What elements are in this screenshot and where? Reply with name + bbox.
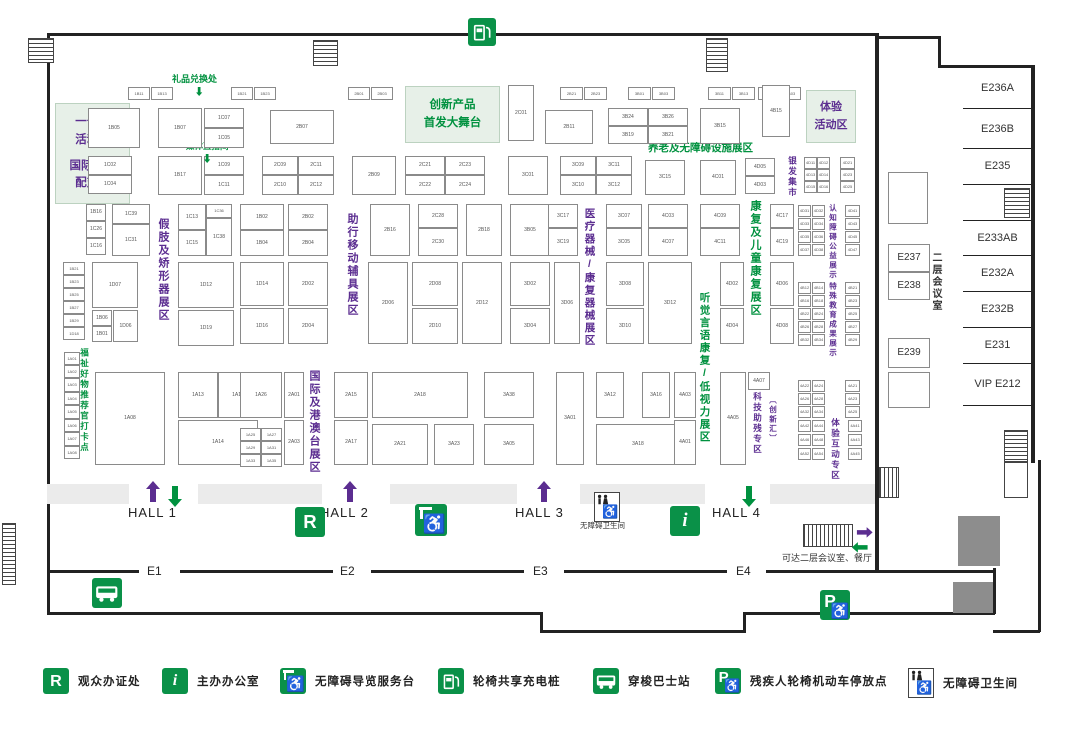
down-arrow-icon <box>196 82 202 100</box>
aisle-bar <box>47 484 129 504</box>
booth-3B15: 3B15 <box>700 108 740 144</box>
booth-4D35: 4D35 <box>798 231 811 243</box>
room-E236A: E236A <box>963 68 1032 108</box>
booth-3C11: 3C11 <box>596 156 632 175</box>
legend-guide-icon: ♿ <box>280 668 306 694</box>
wall-segment <box>540 612 543 632</box>
legend-item-parking: P♿残疾人轮椅机动车停放点 <box>715 668 888 694</box>
booth-4B25: 4B25 <box>845 308 860 320</box>
right-arrow-icon <box>852 527 873 538</box>
room-stairwell <box>963 184 1032 220</box>
booth-1B17: 1B17 <box>158 156 202 195</box>
booth-4D41: 4D41 <box>845 205 860 217</box>
letter-i: i <box>173 672 177 690</box>
booth-4C11: 4C11 <box>700 228 740 256</box>
booth-1C31: 1C31 <box>112 224 150 256</box>
legend-label: 轮椅共享充电桩 <box>473 673 561 689</box>
booth-1C13: 1C13 <box>178 204 206 230</box>
booth-4A03: 4A03 <box>674 372 696 418</box>
legend-label: 主办办公室 <box>197 673 260 689</box>
booth-2B18: 2B18 <box>466 204 502 256</box>
booth-4D06: 4D06 <box>770 262 794 306</box>
booth-2C11: 2C11 <box>298 156 334 175</box>
stairs-icon <box>879 467 899 498</box>
booth-4A46: 4A46 <box>798 434 811 446</box>
booth-4D32: 4D32 <box>812 205 825 217</box>
booth-1D14: 1D14 <box>240 262 284 306</box>
booth-1A13: 1A13 <box>178 372 218 418</box>
down-arrow-icon <box>168 481 182 507</box>
zone-label: 福祉好物推荐官打卡点 <box>80 348 89 453</box>
zone-label: 体验互动专区 <box>831 418 840 481</box>
booth-1A07: 1A07 <box>64 432 80 446</box>
booth-4A41: 4A41 <box>848 420 862 432</box>
booth-4D08: 4D08 <box>770 308 794 344</box>
booth-2A21: 2A21 <box>372 424 428 465</box>
booth-3B11: 3B11 <box>708 87 731 100</box>
legend-label: 穿梭巴士站 <box>628 673 691 689</box>
wall-segment <box>540 630 746 633</box>
booth-4A28: 4A28 <box>812 393 825 405</box>
zone-label: 科技助残专区 <box>753 392 762 455</box>
booth-2B02: 2B02 <box>288 204 328 230</box>
info-office-icon: i <box>670 506 700 536</box>
legend-item-rbadge: R观众办证处 <box>43 668 141 694</box>
booth-1C04: 1C04 <box>88 175 132 194</box>
stairs-icon <box>706 38 728 72</box>
booth-3A16: 3A16 <box>642 372 670 418</box>
wall-segment <box>47 33 878 36</box>
wall-segment <box>47 33 50 614</box>
room-box-E238: E238 <box>888 272 930 300</box>
booth-1B21: 1B21 <box>63 262 85 275</box>
booth-4D36: 4D36 <box>812 231 825 243</box>
booth-2C01: 2C01 <box>508 85 534 141</box>
wall-segment <box>1038 460 1041 632</box>
booth-1A04: 1A04 <box>64 392 80 405</box>
activity-area-line: 活动区 <box>815 117 848 134</box>
booth-3C19: 3C19 <box>548 228 578 256</box>
booth-2A18: 2A18 <box>372 372 468 418</box>
booth-4D25: 4D25 <box>840 181 855 193</box>
booth-4B29: 4B29 <box>845 334 860 346</box>
shuttle-bus-icon <box>92 578 122 608</box>
booth-4B28: 4B28 <box>812 321 825 333</box>
booth-1C16: 1C16 <box>86 238 106 255</box>
legend-item-toilet: ♿无障碍卫生间 <box>908 668 1018 698</box>
hall-label: HALL 2 <box>320 505 369 520</box>
stairs-icon <box>2 523 16 585</box>
stairs-icon <box>28 38 54 63</box>
booth-1C36: 1C36 <box>206 204 232 218</box>
activity-area-line: 首发大舞台 <box>424 115 482 133</box>
legend-label: 观众办证处 <box>78 673 141 689</box>
booth-3B01: 3B01 <box>628 87 651 100</box>
booth-1B06: 1B06 <box>92 310 112 326</box>
booth-3A18: 3A18 <box>596 424 680 465</box>
booth-1A06: 1A06 <box>64 419 80 432</box>
booth-4C19: 4C19 <box>770 228 794 256</box>
booth-4B27: 4B27 <box>845 321 860 333</box>
booth-1C39: 1C39 <box>112 204 150 224</box>
booth-3B24: 3B24 <box>608 108 648 126</box>
letter-i: i <box>682 510 687 532</box>
booth-3A12: 3A12 <box>596 372 624 418</box>
booth-4D15: 4D15 <box>804 181 817 193</box>
wall-segment <box>371 570 524 573</box>
service-block <box>958 516 1000 566</box>
activity-area: 创新产品首发大舞台 <box>405 86 500 143</box>
booth-3C15: 3C15 <box>645 160 685 195</box>
wheelchair-charging-icon <box>468 18 496 46</box>
booth-4A26: 4A26 <box>798 393 811 405</box>
room-E232A: E232A <box>963 255 1032 291</box>
booth-4B14: 4B14 <box>812 282 825 294</box>
booth-4A54: 4A54 <box>812 448 825 460</box>
booth-3D10: 3D10 <box>606 308 644 344</box>
booth-4D23: 4D23 <box>840 169 855 181</box>
booth-2C23: 2C23 <box>445 156 485 175</box>
booth-2C30: 2C30 <box>418 228 458 256</box>
booth-3C10: 3C10 <box>560 175 596 195</box>
aisle-bar <box>390 484 517 504</box>
booth-1C02: 1C02 <box>88 156 132 175</box>
booth-1C15: 1C15 <box>178 230 206 256</box>
booth-3A01: 3A01 <box>556 372 584 465</box>
booth-1A08: 1A08 <box>95 372 165 465</box>
booth-1B23: 1B23 <box>254 87 276 100</box>
booth-4C07: 4C07 <box>648 228 688 256</box>
booth-4B23: 4B23 <box>845 295 860 307</box>
zone-label: 国际及港澳台展区 <box>308 370 319 474</box>
hall-label: HALL 4 <box>712 505 761 520</box>
wall-segment <box>878 36 940 39</box>
booth-4D03: 4D03 <box>745 176 775 194</box>
booth-1A35: 1A35 <box>261 454 282 467</box>
booth-4D31: 4D31 <box>798 205 811 217</box>
booth-3C12: 3C12 <box>596 175 632 195</box>
booth-4A44: 4A44 <box>812 420 825 432</box>
wall-segment <box>993 630 1040 633</box>
booth-1A33: 1A33 <box>240 454 261 467</box>
booth-4A42: 4A42 <box>798 420 811 432</box>
booth-1B16: 1B16 <box>86 204 106 221</box>
room-box-E239: E239 <box>888 338 930 368</box>
booth-4D04: 4D04 <box>720 308 744 344</box>
booth-4B34: 4B34 <box>812 334 825 346</box>
wall-segment <box>47 612 541 615</box>
booth-3B26: 3B26 <box>648 108 688 126</box>
legend-charge-icon <box>438 668 464 694</box>
booth-2A17: 2A17 <box>334 420 368 465</box>
booth-1A02: 1A02 <box>64 365 80 378</box>
booth-4A21: 4A21 <box>845 380 860 392</box>
entrance-label: E1 <box>147 564 162 578</box>
entrance-label: E2 <box>340 564 355 578</box>
letter-r: R <box>303 511 316 533</box>
booth-1B02: 1B02 <box>240 204 284 230</box>
room-box-E237: E237 <box>888 244 930 272</box>
booth-4D02: 4D02 <box>720 262 744 306</box>
booth-4A34: 4A34 <box>812 406 825 418</box>
hall-label: HALL 1 <box>128 505 177 520</box>
booth-4D43: 4D43 <box>845 218 860 230</box>
booth-1B01: 1B01 <box>92 326 112 342</box>
booth-1A31: 1A31 <box>261 441 282 454</box>
booth-4A01: 4A01 <box>674 420 696 465</box>
booth-3C17: 3C17 <box>548 204 578 228</box>
zone-label: 助行移动辅具展区 <box>346 213 357 317</box>
booth-4B21: 4B21 <box>845 282 860 294</box>
booth-1B07: 1B07 <box>158 108 202 148</box>
booth-4D11: 4D11 <box>804 157 817 169</box>
booth-3D04: 3D04 <box>510 308 550 344</box>
up-arrow-icon <box>537 481 551 507</box>
booth-1A01: 1A01 <box>64 352 80 365</box>
booth-4A23: 4A23 <box>845 393 860 405</box>
booth-4B32: 4B32 <box>798 334 811 346</box>
booth-4D37: 4D37 <box>798 244 811 256</box>
booth-4D13: 4D13 <box>804 169 817 181</box>
booth-2B16: 2B16 <box>370 204 410 256</box>
booth-4A05: 4A05 <box>720 372 746 465</box>
down-arrow-icon <box>742 481 756 507</box>
booth-2C24: 2C24 <box>445 175 485 195</box>
accessible-guide-icon: ♿ <box>415 504 447 536</box>
booth-1A26: 1A26 <box>240 372 282 418</box>
booth-1C11: 1C11 <box>204 175 244 195</box>
booth-1C26: 1C26 <box>86 221 106 238</box>
booth-2B23: 2B23 <box>584 87 607 100</box>
legend-label: 残疾人轮椅机动车停放点 <box>750 673 888 689</box>
stairs-icon <box>1004 430 1028 462</box>
booth-2D08: 2D08 <box>412 262 458 306</box>
booth-3B05: 3B05 <box>510 204 550 256</box>
booth-1D19: 1D19 <box>178 310 234 346</box>
booth-2B03: 2B03 <box>371 87 393 100</box>
booth-3D12: 3D12 <box>648 262 692 344</box>
booth-3B19: 3B19 <box>608 126 648 144</box>
legend-item-ibadge: i主办办公室 <box>162 668 260 694</box>
legend-item-charge: 轮椅共享充电桩 <box>438 668 561 694</box>
hall-label: HALL 3 <box>515 505 564 520</box>
booth-1A29: 1A29 <box>240 441 261 454</box>
booth-2C12: 2C12 <box>298 175 334 195</box>
booth-1D16: 1D16 <box>240 308 284 344</box>
booth-4A25: 4A25 <box>845 406 860 418</box>
booth-4B16: 4B16 <box>798 295 811 307</box>
room-VIP E212: VIP E212 <box>963 363 1032 405</box>
booth-1B25: 1B25 <box>63 288 85 301</box>
wall-segment <box>180 570 333 573</box>
booth-1B29: 1B29 <box>63 314 85 327</box>
booth-1B05: 1B05 <box>88 108 140 148</box>
booth-4C09: 4C09 <box>700 204 740 228</box>
exhibition-floor-plan: 一号馆活动区国际商贸配对区创新产品首发大舞台体验活动区假肢及矫形器展区助行移动辅… <box>0 0 1080 734</box>
legend-toilet-icon: ♿ <box>908 668 934 698</box>
booth-4A48: 4A48 <box>812 434 825 446</box>
booth-2A03: 2A03 <box>284 420 304 465</box>
booth-2B01: 2B01 <box>348 87 370 100</box>
accessible-parking-icon: P♿ <box>820 590 850 620</box>
zone-label: 二层会议室 <box>930 252 940 312</box>
booth-1C38: 1C38 <box>206 218 232 256</box>
legend-ibadge-icon: i <box>162 668 188 694</box>
wall-segment <box>963 108 1032 109</box>
booth-4A07: 4A07 <box>748 372 770 390</box>
booth-1D18: 1D18 <box>63 327 85 340</box>
booth-1D07: 1D07 <box>92 262 138 308</box>
booth-1C07: 1C07 <box>204 108 244 128</box>
booth-4C03: 4C03 <box>648 204 688 228</box>
booth-4A32: 4A32 <box>798 406 811 418</box>
booth-4A45: 4A45 <box>848 448 862 460</box>
booth-4A43: 4A43 <box>848 434 862 446</box>
booth-2D10: 2D10 <box>412 308 458 344</box>
booth-2C22: 2C22 <box>405 175 445 195</box>
booth-1A05: 1A05 <box>64 405 80 419</box>
legend-item-guide: ♿无障碍导览服务台 <box>280 668 415 694</box>
activity-area: 体验活动区 <box>806 90 856 143</box>
booth-4A24: 4A24 <box>812 380 825 392</box>
booth-1A27: 1A27 <box>261 428 282 441</box>
booth-1B11: 1B11 <box>128 87 150 100</box>
booth-2D04: 2D04 <box>288 308 328 344</box>
room-box-unlabeled <box>888 372 930 408</box>
booth-3B03: 3B03 <box>652 87 675 100</box>
wall-segment <box>564 570 727 573</box>
entrance-label: E3 <box>533 564 548 578</box>
booth-4D05: 4D05 <box>745 158 775 176</box>
booth-1A25: 1A25 <box>240 428 261 441</box>
booth-2B11: 2B11 <box>545 110 593 144</box>
legend-item-bus: 穿梭巴士站 <box>593 668 691 694</box>
registration-icon: R <box>295 507 325 537</box>
booth-4B26: 4B26 <box>798 321 811 333</box>
down-arrow-icon <box>204 149 210 167</box>
booth-1A03: 1A03 <box>64 378 80 392</box>
legend-parking-icon: P♿ <box>715 668 741 694</box>
room-E233AB: E233AB <box>963 220 1032 255</box>
wall-segment <box>47 570 139 573</box>
zone-label: 假肢及矫形器展区 <box>157 218 168 322</box>
room-E236B: E236B <box>963 110 1032 148</box>
booth-4A52: 4A52 <box>798 448 811 460</box>
booth-4C17: 4C17 <box>770 204 794 228</box>
activity-area-line: 创新产品 <box>430 97 476 115</box>
zone-label: 银发集市 <box>788 156 797 198</box>
booth-3D08: 3D08 <box>606 262 644 306</box>
zone-label: 认知障碍公益展示 <box>829 204 837 280</box>
booth-2A01: 2A01 <box>284 372 304 418</box>
map-note: 礼品兑换处 <box>172 72 217 85</box>
booth-4D14: 4D14 <box>817 169 830 181</box>
booth-1B27: 1B27 <box>63 301 85 314</box>
room-E231: E231 <box>963 327 1032 363</box>
letter-r: R <box>50 672 62 691</box>
booth-4D34: 4D34 <box>812 218 825 230</box>
booth-4D47: 4D47 <box>845 244 860 256</box>
service-block <box>953 582 993 613</box>
booth-3A05: 3A05 <box>484 424 534 465</box>
booth-2B04: 2B04 <box>288 230 328 256</box>
legend-label: 无障碍卫生间 <box>943 675 1018 691</box>
booth-4D38: 4D38 <box>812 244 825 256</box>
booth-2B07: 2B07 <box>270 110 334 144</box>
booth-1B23: 1B23 <box>63 275 85 288</box>
booth-4B22: 4B22 <box>798 308 811 320</box>
booth-1B04: 1B04 <box>240 230 284 256</box>
booth-2C28: 2C28 <box>418 204 458 228</box>
booth-2B09: 2B09 <box>352 156 396 195</box>
aisle-bar <box>770 484 875 504</box>
booth-3B13: 3B13 <box>732 87 755 100</box>
booth-2B21: 2B21 <box>560 87 583 100</box>
booth-1C05: 1C05 <box>204 128 244 148</box>
booth-4D12: 4D12 <box>817 157 830 169</box>
map-note: 可达二层会议室、餐厅 <box>782 551 872 564</box>
booth-3B21: 3B21 <box>648 126 688 144</box>
booth-4D45: 4D45 <box>845 231 860 243</box>
legend-label: 无障碍导览服务台 <box>315 673 415 689</box>
booth-4B12: 4B12 <box>798 282 811 294</box>
wall-segment <box>743 612 746 632</box>
booth-1A08: 1A08 <box>64 446 80 459</box>
booth-4C01: 4C01 <box>700 160 736 195</box>
booth-1B13: 1B13 <box>151 87 173 100</box>
zone-label: 康复及儿童康复展区 <box>749 200 760 317</box>
stairs-icon <box>313 40 338 66</box>
booth-1D12: 1D12 <box>178 262 234 308</box>
booth-3C01: 3C01 <box>508 156 548 195</box>
booth-2C09: 2C09 <box>262 156 298 175</box>
zone-label: 特殊教育成果展示 <box>829 282 837 358</box>
legend-rbadge-icon: R <box>43 668 69 694</box>
booth-2D12: 2D12 <box>462 262 502 344</box>
booth-3C09: 3C09 <box>560 156 596 175</box>
booth-2A15: 2A15 <box>334 372 368 418</box>
accessible-toilet-icon: ♿ <box>594 492 620 522</box>
booth-4B18: 4B18 <box>812 295 825 307</box>
room-E235: E235 <box>963 148 1032 184</box>
zone-label: 听觉言语康复/低视力展区 <box>699 292 710 444</box>
booth-3A23: 3A23 <box>434 424 474 465</box>
wall-segment <box>766 570 995 573</box>
zone-label: 〔创新汇〕 <box>769 396 777 444</box>
booth-4B15: 4B15 <box>762 85 790 137</box>
booth-2C10: 2C10 <box>262 175 298 195</box>
entrance-label: E4 <box>736 564 751 578</box>
booth-4A22: 4A22 <box>798 380 811 392</box>
stairs-icon <box>803 524 853 547</box>
wall-segment <box>938 36 941 68</box>
up-arrow-icon <box>343 481 357 507</box>
booth-3C05: 3C05 <box>606 228 642 256</box>
booth-4B24: 4B24 <box>812 308 825 320</box>
booth-3D06: 3D06 <box>554 262 580 344</box>
booth-4D16: 4D16 <box>817 181 830 193</box>
activity-area-line: 体验 <box>820 99 842 116</box>
booth-3D02: 3D02 <box>510 262 550 306</box>
booth-4D21: 4D21 <box>840 157 855 169</box>
booth-4D33: 4D33 <box>798 218 811 230</box>
aisle-bar <box>198 484 322 504</box>
booth-2C21: 2C21 <box>405 156 445 175</box>
wall-segment <box>963 405 1032 406</box>
booth-1B21: 1B21 <box>231 87 253 100</box>
wall-segment <box>993 568 996 614</box>
booth-2D06: 2D06 <box>368 262 408 344</box>
